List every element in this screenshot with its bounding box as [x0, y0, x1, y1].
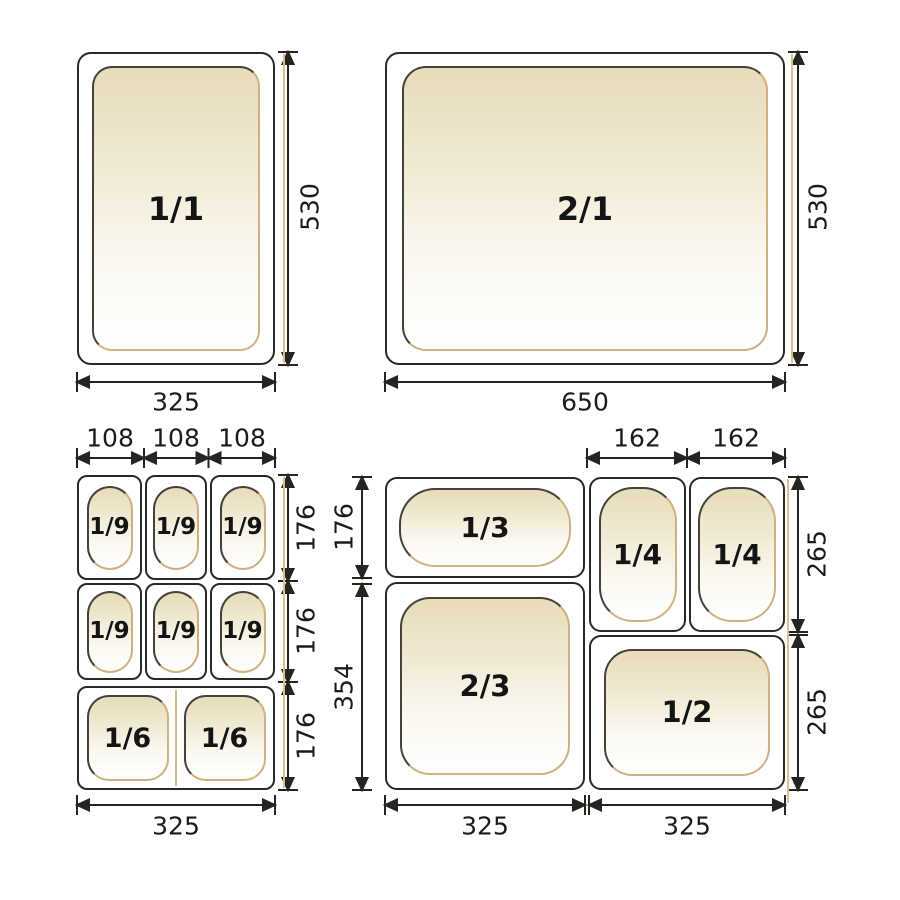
- dim-bottom-width-left: 325: [461, 812, 509, 841]
- dim-quarter-width-1: 162: [613, 424, 661, 453]
- pan-1-9-cell: 1/9: [145, 583, 207, 680]
- pan-1-2: 1/2: [589, 635, 785, 790]
- pan-1-4-left: 1/4: [589, 477, 686, 632]
- pan-1-4-right: 1/4: [689, 477, 785, 632]
- dim-two-thirds-height: 354: [330, 663, 359, 711]
- pan-1-9-label: 1/9: [89, 620, 129, 643]
- dim-row-3: 176: [292, 712, 321, 760]
- gastronorm-size-diagram: 1/1 2/1 1/9 1/9 1/9 1/9 1/9 1/9 1/6: [0, 0, 900, 900]
- pan-1-9-label: 1/9: [222, 620, 262, 643]
- dim-width-2-1: 650: [561, 388, 609, 417]
- dim-col-2: 108: [152, 424, 200, 453]
- pan-2-3-label: 2/3: [460, 672, 511, 701]
- dim-total-width-grid: 325: [152, 812, 200, 841]
- pan-1-1-label: 1/1: [148, 193, 204, 225]
- dim-row-1: 176: [292, 504, 321, 552]
- pan-1-9-cell: 1/9: [77, 475, 142, 580]
- dim-col-3: 108: [218, 424, 266, 453]
- pan-1-4-label: 1/4: [712, 541, 761, 569]
- dim-height-1-1: 530: [296, 183, 325, 231]
- dim-width-1-1: 325: [152, 388, 200, 417]
- pan-1-9-cell: 1/9: [145, 475, 207, 580]
- leader-line: [787, 479, 789, 803]
- pan-1-9-label: 1/9: [156, 620, 196, 643]
- pan-2-1-label: 2/1: [557, 193, 613, 225]
- pan-1-6-divider: [175, 690, 177, 786]
- dim-half-height: 265: [803, 688, 832, 736]
- pan-2-3: 2/3: [385, 582, 585, 790]
- dim-height-2-1: 530: [804, 183, 833, 231]
- pan-1-6-right: 1/6: [176, 688, 273, 788]
- pan-1-9-label: 1/9: [222, 516, 262, 539]
- pan-1-9-label: 1/9: [156, 516, 196, 539]
- dim-col-1: 108: [86, 424, 134, 453]
- pan-1-3-label: 1/3: [460, 514, 509, 542]
- pan-2-1: 2/1: [385, 52, 785, 365]
- dim-quarter-width-2: 162: [712, 424, 760, 453]
- pan-1-1: 1/1: [77, 52, 275, 365]
- dim-third-height: 176: [330, 503, 359, 551]
- pan-1-9-cell: 1/9: [77, 583, 142, 680]
- dim-bottom-width-right: 325: [663, 812, 711, 841]
- pan-1-9-label: 1/9: [89, 516, 129, 539]
- leader-line: [283, 54, 285, 363]
- dim-quarter-height: 265: [803, 530, 832, 578]
- pan-1-6-row: 1/6 1/6: [77, 686, 275, 790]
- leader-line: [791, 54, 793, 363]
- pan-1-4-label: 1/4: [613, 541, 662, 569]
- pan-1-6-left: 1/6: [79, 688, 176, 788]
- dim-row-2: 176: [292, 607, 321, 655]
- pan-1-3: 1/3: [385, 477, 585, 578]
- leader-line: [283, 477, 285, 788]
- pan-1-2-label: 1/2: [662, 698, 713, 727]
- pan-1-6-label: 1/6: [201, 725, 248, 752]
- pan-1-9-cell: 1/9: [210, 475, 275, 580]
- pan-1-9-cell: 1/9: [210, 583, 275, 680]
- pan-1-6-label: 1/6: [104, 725, 151, 752]
